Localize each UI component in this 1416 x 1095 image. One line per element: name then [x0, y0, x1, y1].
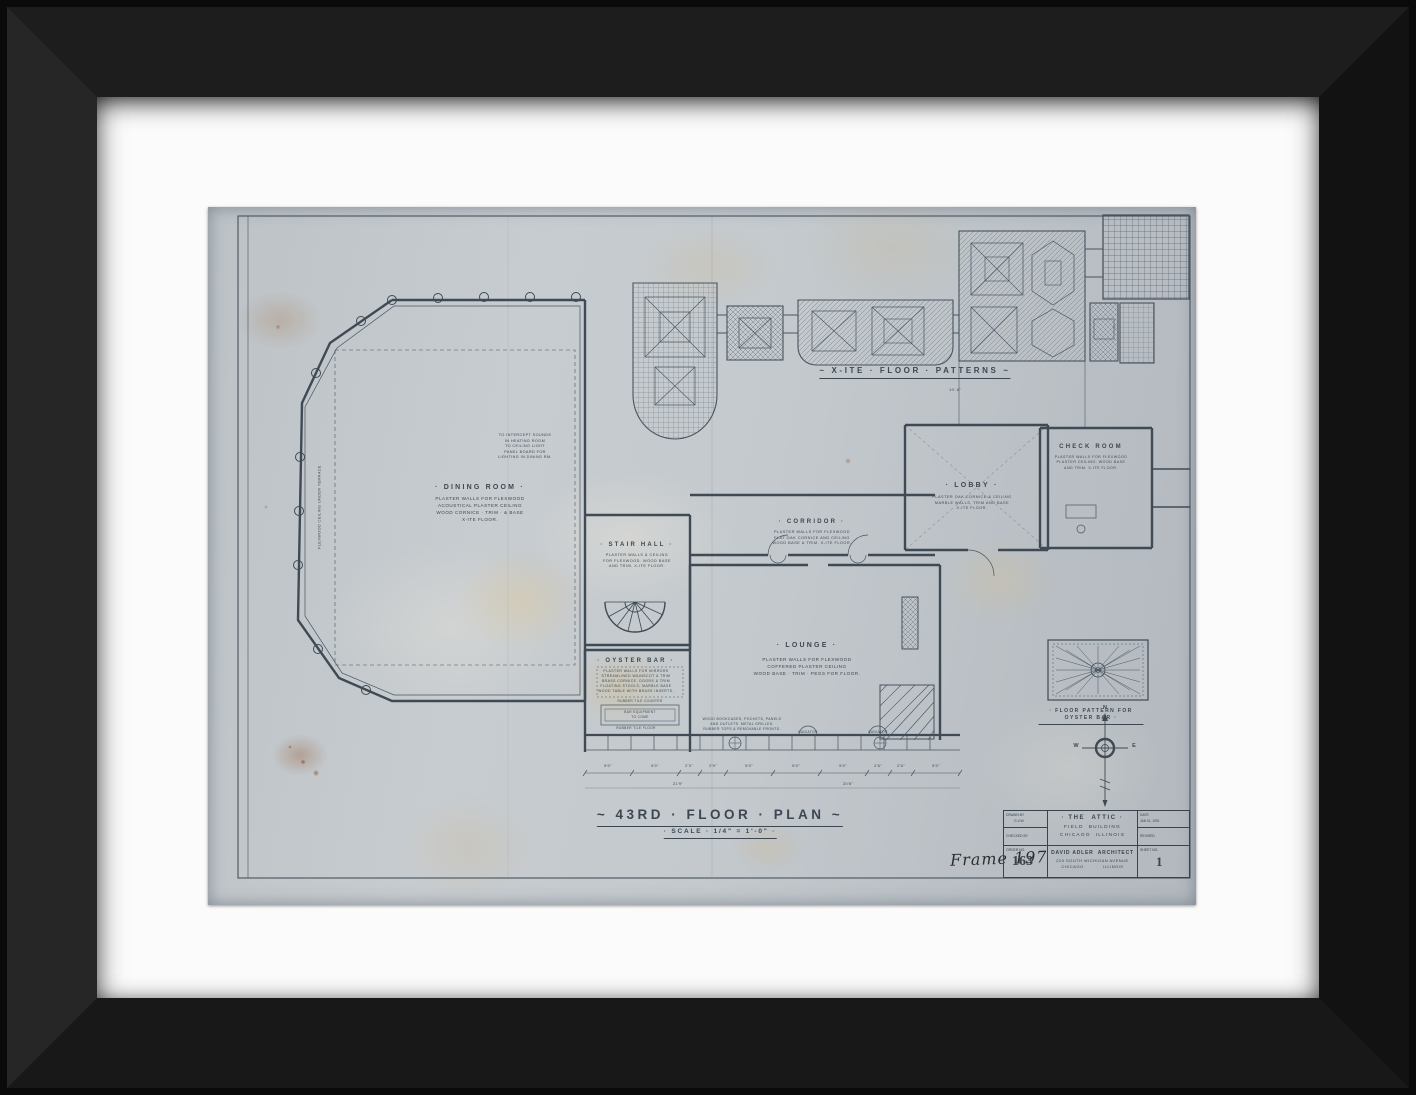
framed-blueprint-photo: ~ X-ITE · FLOOR · PATTERNS ~ 19'-6" · DI… [0, 0, 1416, 1095]
frame-outer-edge [0, 0, 1416, 1095]
